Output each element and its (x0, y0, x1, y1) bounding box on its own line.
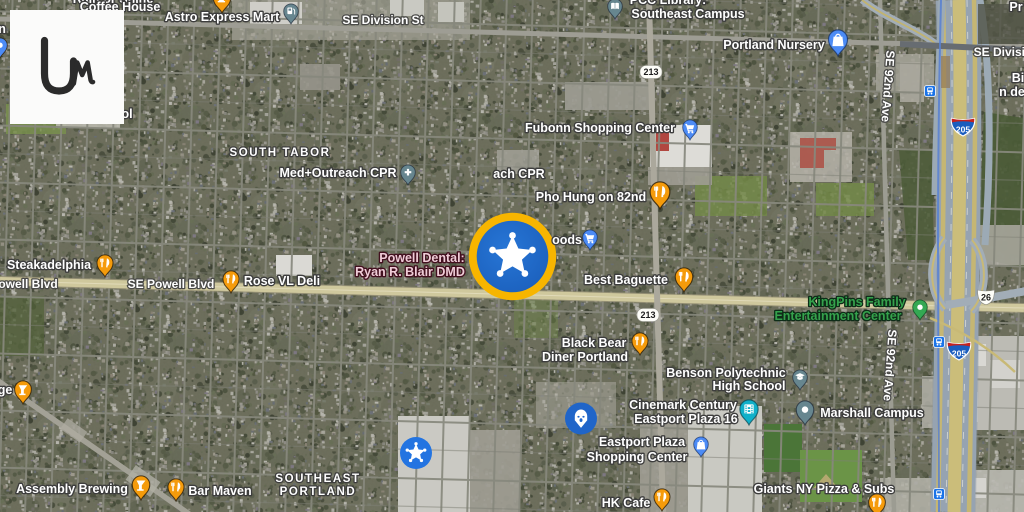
svg-text:205: 205 (952, 348, 966, 358)
svg-text:SOUTH TABOR: SOUTH TABOR (229, 147, 330, 159)
svg-text:HK Cafe: HK Cafe (602, 496, 651, 510)
svg-text:Cinemark Century: Cinemark Century (629, 398, 737, 412)
svg-text:Powell Dental:: Powell Dental: (379, 251, 464, 265)
svg-text:Diner Portland: Diner Portland (542, 350, 628, 364)
svg-text:High School: High School (713, 379, 786, 393)
svg-text:Fubonn Shopping Center: Fubonn Shopping Center (525, 121, 675, 135)
svg-text:SOUTHEAST: SOUTHEAST (275, 473, 360, 485)
svg-text:KingPins Family: KingPins Family (808, 295, 905, 309)
svg-text:Bar Maven: Bar Maven (188, 484, 251, 498)
svg-text:Portland Nursery: Portland Nursery (723, 38, 824, 52)
svg-text:ge: ge (0, 383, 12, 397)
svg-text:Rose VL Deli: Rose VL Deli (244, 274, 320, 288)
svg-text:26: 26 (981, 293, 991, 303)
svg-text:Bi: Bi (1012, 71, 1024, 85)
svg-text:Eastport Plaza 16: Eastport Plaza 16 (634, 412, 738, 426)
svg-text:Shopping Center: Shopping Center (587, 450, 688, 464)
svg-text:Best Baguette: Best Baguette (584, 273, 668, 287)
svg-text:Giants NY Pizza & Subs: Giants NY Pizza & Subs (754, 482, 895, 496)
svg-text:213: 213 (640, 310, 655, 320)
svg-text:oods: oods (552, 233, 582, 247)
svg-text:n de: n de (999, 85, 1024, 99)
svg-text:Med+Outreach CPR: Med+Outreach CPR (279, 166, 396, 180)
svg-text:205: 205 (956, 124, 970, 134)
svg-text:SE Divisio: SE Divisio (974, 45, 1024, 59)
svg-text:Entertainment Center: Entertainment Center (774, 309, 901, 323)
svg-text:Pr: Pr (1009, 0, 1022, 14)
svg-text:SE Powell Blvd: SE Powell Blvd (128, 277, 215, 291)
svg-text:Marshall Campus: Marshall Campus (820, 406, 924, 420)
svg-text:Astro Express Mart: Astro Express Mart (165, 10, 280, 24)
svg-text:Eastport Plaza: Eastport Plaza (599, 435, 686, 449)
svg-text:Black Bear: Black Bear (562, 336, 627, 350)
svg-text:213: 213 (643, 67, 658, 77)
svg-text:SE Division St: SE Division St (342, 13, 423, 27)
svg-text:owell Blvd: owell Blvd (0, 277, 58, 291)
svg-text:Assembly Brewing: Assembly Brewing (16, 482, 128, 496)
svg-text:Southeast Campus: Southeast Campus (631, 7, 744, 21)
svg-text:PORTLAND: PORTLAND (280, 486, 357, 498)
svg-text:Steakadelphia: Steakadelphia (7, 258, 92, 272)
svg-text:n: n (0, 22, 6, 36)
svg-text:Pho Hung on 82nd: Pho Hung on 82nd (536, 190, 646, 204)
svg-text:Ryan R. Blair DMD: Ryan R. Blair DMD (355, 265, 465, 279)
svg-text:PCC Library:: PCC Library: (630, 0, 706, 7)
svg-text:ach CPR: ach CPR (493, 167, 544, 181)
svg-text:Benson Polytechnic: Benson Polytechnic (666, 366, 786, 380)
